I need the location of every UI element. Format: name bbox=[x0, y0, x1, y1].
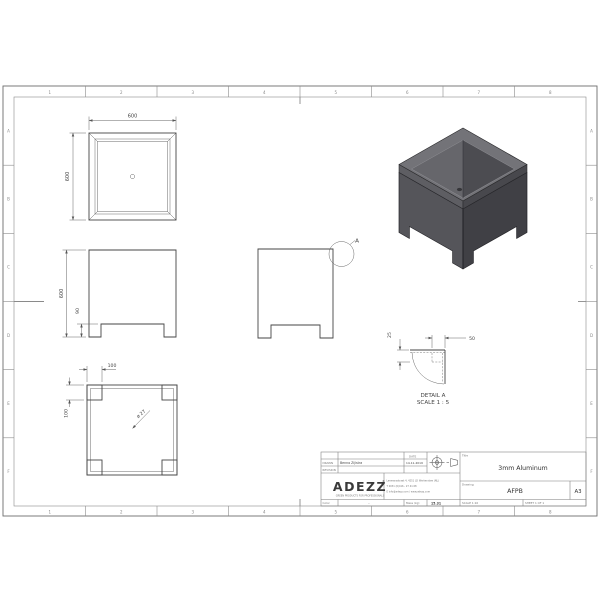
inner-drain-hole bbox=[457, 188, 462, 191]
detail-marker-label: A bbox=[355, 239, 359, 245]
revision-label: REVISION bbox=[323, 468, 336, 472]
cad-sheet-svg: 1 2 3 4 5 6 7 8 1 2 3 4 5 6 7 8 A B C D … bbox=[0, 0, 600, 600]
grid-col-label: 2 bbox=[120, 510, 123, 515]
detail-view: 25 50 DETAIL A SCALE 1 : 5 bbox=[387, 332, 475, 406]
grid-col-label: 1 bbox=[49, 510, 52, 515]
address-line3: E info@adezz.com / www.adezz.com bbox=[387, 491, 431, 494]
drawing-value: AFPB bbox=[507, 488, 523, 495]
dim-top-width: 600 bbox=[128, 114, 138, 120]
grid-row-label: F bbox=[590, 469, 593, 474]
front-view: 600 90 bbox=[59, 250, 176, 337]
drawing-sheet: 1 2 3 4 5 6 7 8 1 2 3 4 5 6 7 8 A B C D … bbox=[0, 0, 600, 600]
grid-col-label: 3 bbox=[192, 90, 195, 95]
grid-col-label: 1 bbox=[49, 90, 52, 95]
title-label: Title bbox=[461, 454, 468, 458]
mass-label: Mass (kg) bbox=[406, 501, 420, 505]
date-label: DATE bbox=[409, 455, 417, 459]
adezz-logo: ADEZZ bbox=[333, 479, 387, 494]
grid-row-label: D bbox=[590, 333, 593, 338]
address-line1: Leemansstraat 4, 4251 LD Werkendam (NL) bbox=[387, 480, 439, 483]
grid-row-label: D bbox=[7, 333, 10, 338]
drawn-value: Benno Zijlstra bbox=[340, 461, 362, 465]
color-value: - bbox=[368, 501, 369, 505]
sheet-frame: 1 2 3 4 5 6 7 8 1 2 3 4 5 6 7 8 A B C D … bbox=[3, 86, 597, 516]
dim-foot-depth: 100 bbox=[64, 409, 70, 418]
grid-col-label: 6 bbox=[406, 510, 409, 515]
detail-scale: SCALE 1 : 5 bbox=[417, 400, 450, 406]
grid-row-label: B bbox=[590, 197, 593, 202]
grid-col-label: 3 bbox=[192, 510, 195, 515]
logo-tagline: GREEN PRODUCTS FOR PROFESSIONALS bbox=[336, 495, 385, 498]
grid-col-label: 2 bbox=[120, 90, 123, 95]
bottom-view: 100 100 ø 27 bbox=[64, 363, 178, 475]
title-block: DRAWN Benno Zijlstra REVISION DATE 14-11… bbox=[321, 452, 586, 506]
date-value: 14-11-2019 bbox=[406, 461, 423, 465]
color-label: Color bbox=[323, 501, 331, 505]
sheet-number: SHEET 1 OF 1 bbox=[525, 501, 544, 505]
grid-row-label: B bbox=[7, 197, 10, 202]
dim-front-height: 600 bbox=[59, 289, 65, 299]
grid-row-label: C bbox=[590, 265, 593, 270]
dim-fold-depth: 25 bbox=[387, 332, 393, 338]
drain-hole bbox=[130, 174, 134, 178]
grid-ticks bbox=[3, 86, 597, 516]
projection-symbol-icon bbox=[430, 455, 458, 470]
dim-hole-diameter: ø 27 bbox=[136, 409, 148, 420]
grid-col-label: 7 bbox=[478, 510, 481, 515]
grid-col-label: 5 bbox=[335, 90, 338, 95]
address-line2: T 0031 (0)416 - 27 41 68 bbox=[387, 485, 418, 488]
grid-col-label: 4 bbox=[263, 510, 266, 515]
grid-col-label: 8 bbox=[549, 90, 552, 95]
mass-value: 15.31 bbox=[431, 501, 441, 505]
isometric-view bbox=[399, 128, 527, 269]
grid-col-label: 5 bbox=[335, 510, 338, 515]
grid-row-label: E bbox=[7, 401, 10, 406]
dim-foot-height: 90 bbox=[75, 308, 81, 314]
grid-col-label: 4 bbox=[263, 90, 266, 95]
grid-col-label: 6 bbox=[406, 90, 409, 95]
detail-title: DETAIL A bbox=[420, 393, 445, 399]
grid-col-label: 7 bbox=[478, 90, 481, 95]
grid-row-label: E bbox=[590, 401, 593, 406]
dim-top-width-detail: 50 bbox=[469, 336, 475, 342]
drawn-label: DRAWN bbox=[323, 461, 334, 465]
grid-row-label: A bbox=[7, 129, 10, 134]
side-view: A bbox=[258, 239, 359, 339]
dim-foot-width: 100 bbox=[108, 363, 117, 369]
top-view: 600 600 bbox=[65, 114, 176, 221]
grid-col-label: 8 bbox=[549, 510, 552, 515]
paper-size: A3 bbox=[574, 489, 581, 495]
feet bbox=[87, 385, 177, 475]
grid-row-label: F bbox=[7, 469, 10, 474]
dim-top-height: 600 bbox=[65, 172, 71, 182]
logo-mark: ® bbox=[382, 480, 385, 484]
drawing-label: Drawing bbox=[462, 483, 474, 487]
title-value: 3mm Aluminum bbox=[498, 465, 547, 472]
scale-value: SCALE 1:10 bbox=[462, 501, 478, 505]
grid-row-label: A bbox=[590, 129, 593, 134]
grid-row-label: C bbox=[7, 265, 10, 270]
